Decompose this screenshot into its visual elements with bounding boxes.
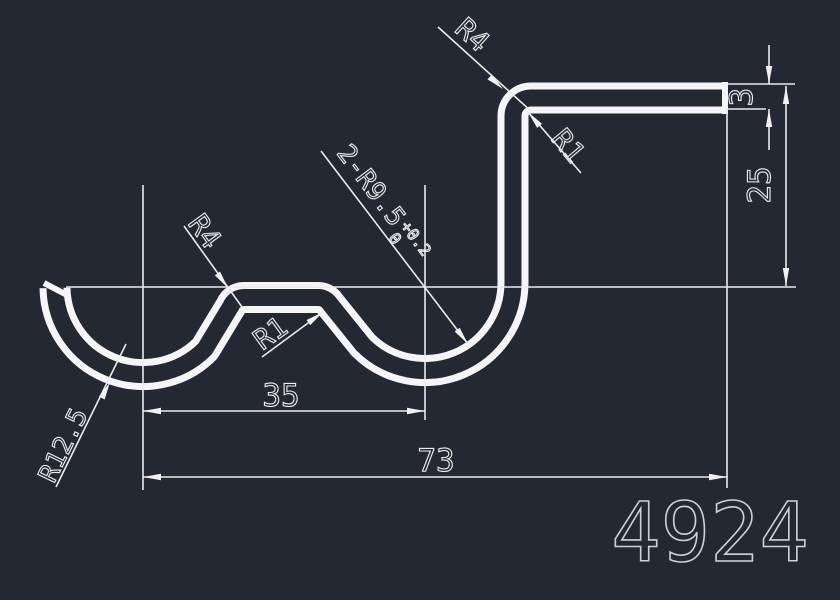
label-r125: R12.5 xyxy=(33,404,94,488)
arrowhead xyxy=(766,109,772,127)
arrowhead xyxy=(783,86,789,104)
label-r1-mid: R1 xyxy=(247,310,294,357)
label-r1-top: R1 xyxy=(545,122,592,169)
dim-text-73: 73 xyxy=(417,443,454,479)
arrowhead xyxy=(709,474,727,480)
label-double-radius-tol-lower: 0 xyxy=(384,229,405,248)
arrowhead xyxy=(407,408,425,414)
part-number: 4924 xyxy=(611,486,808,581)
arrowhead xyxy=(487,75,505,92)
label-r4-mid: R4 xyxy=(181,208,228,255)
arrowhead xyxy=(766,66,772,84)
cad-drawing-canvas[interactable]: R4 R1 R4 R1 R12.5 2-R9.5 +0.2 0 35 73 25… xyxy=(0,0,840,600)
dim-text-35: 35 xyxy=(262,378,299,414)
arrowhead xyxy=(143,474,161,480)
arrowheads xyxy=(99,66,789,480)
label-double-radius: 2-R9.5 +0.2 0 xyxy=(325,139,436,270)
label-r4-top: R4 xyxy=(449,11,496,58)
dim-text-3: 3 xyxy=(724,88,760,107)
arrowhead xyxy=(783,268,789,286)
drawing-svg: R4 R1 R4 R1 R12.5 2-R9.5 +0.2 0 35 73 25… xyxy=(0,0,840,600)
dim-text-25: 25 xyxy=(742,166,778,203)
arrowhead xyxy=(143,408,161,414)
label-double-radius-prefix: 2-R9.5 xyxy=(330,139,410,232)
extension-lines xyxy=(66,84,796,490)
